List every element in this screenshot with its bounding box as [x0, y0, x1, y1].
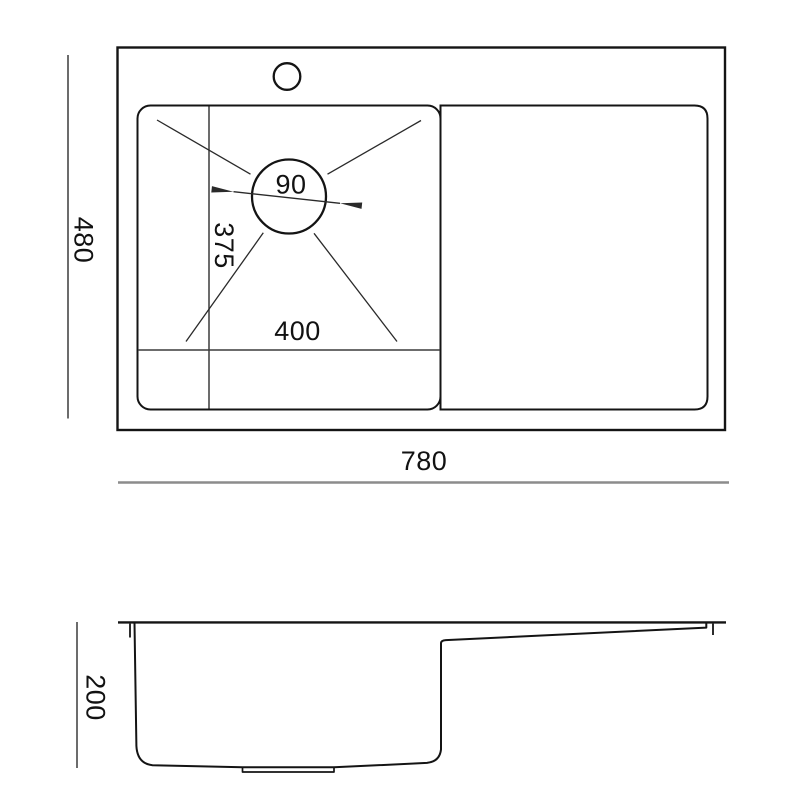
drainboard-outline: [441, 106, 708, 410]
dim-label-bowl-width: 400: [274, 316, 321, 346]
bowl-fold-line-top-right: [328, 121, 422, 175]
drawing-canvas: 90 375 400 480 780 200: [0, 0, 800, 800]
faucet-hole: [274, 63, 301, 90]
dim-label-overall-depth: 480: [69, 217, 99, 264]
bowl-section-profile: [135, 623, 707, 767]
dim-label-height: 200: [81, 674, 111, 721]
dim-label-drain-diameter: 90: [275, 170, 306, 200]
bowl-outline: [138, 106, 441, 410]
dim-label-overall-width: 780: [401, 446, 448, 476]
top-view: 90 375 400 480 780: [68, 48, 729, 483]
bowl-fold-line-bottom-right: [314, 233, 397, 341]
bowl-fold-line-top-left: [157, 120, 251, 174]
sink-technical-drawing: 90 375 400 480 780 200: [0, 0, 800, 800]
side-view: 200: [77, 622, 726, 772]
dim-label-bowl-depth: 375: [209, 222, 239, 269]
